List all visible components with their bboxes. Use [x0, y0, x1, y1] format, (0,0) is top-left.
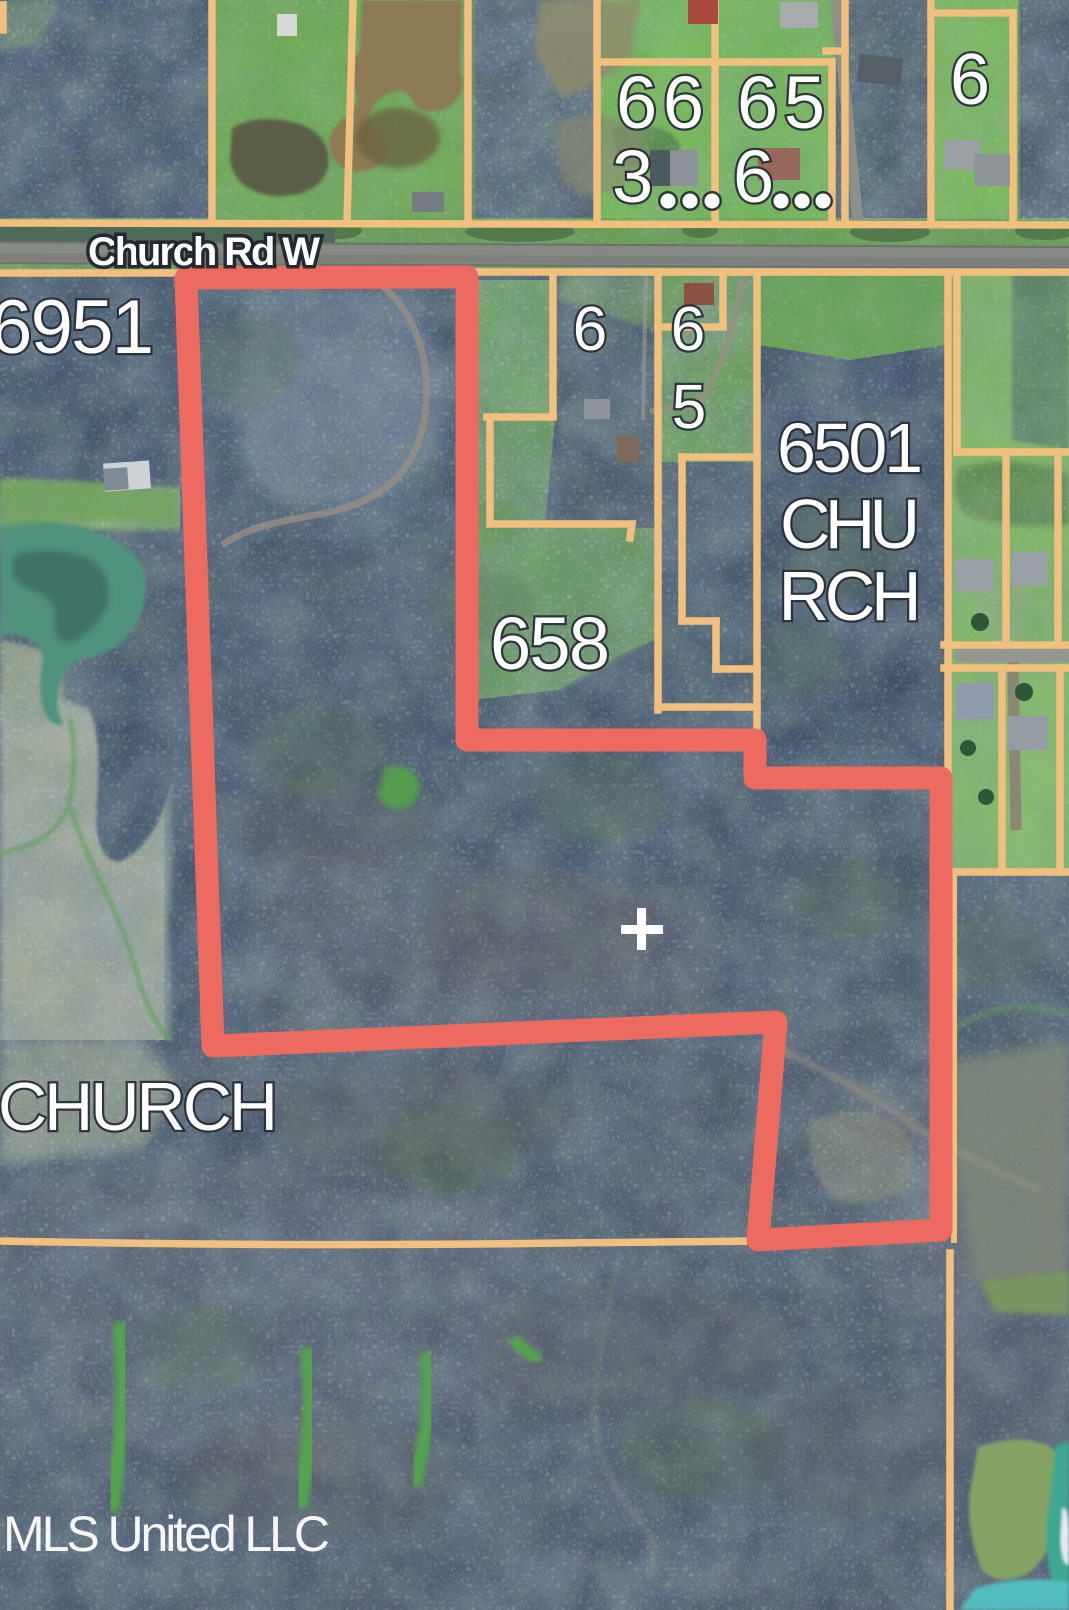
svg-text:6: 6: [950, 40, 990, 120]
svg-text:5: 5: [672, 373, 706, 442]
svg-text:CHU: CHU: [780, 485, 920, 563]
svg-text:MLS United LLC: MLS United LLC: [3, 1506, 330, 1562]
svg-text:6: 6: [573, 295, 607, 364]
svg-text:6: 6: [671, 295, 705, 364]
svg-text:3: 3: [612, 135, 653, 218]
svg-text:658: 658: [490, 602, 610, 685]
svg-text:6501: 6501: [777, 409, 923, 487]
svg-text:RCH: RCH: [779, 557, 922, 635]
svg-text:Church Rd W: Church Rd W: [88, 230, 320, 274]
svg-text:6951: 6951: [0, 285, 154, 370]
svg-text:CHURCH: CHURCH: [0, 1069, 278, 1145]
svg-text:6: 6: [733, 135, 774, 218]
